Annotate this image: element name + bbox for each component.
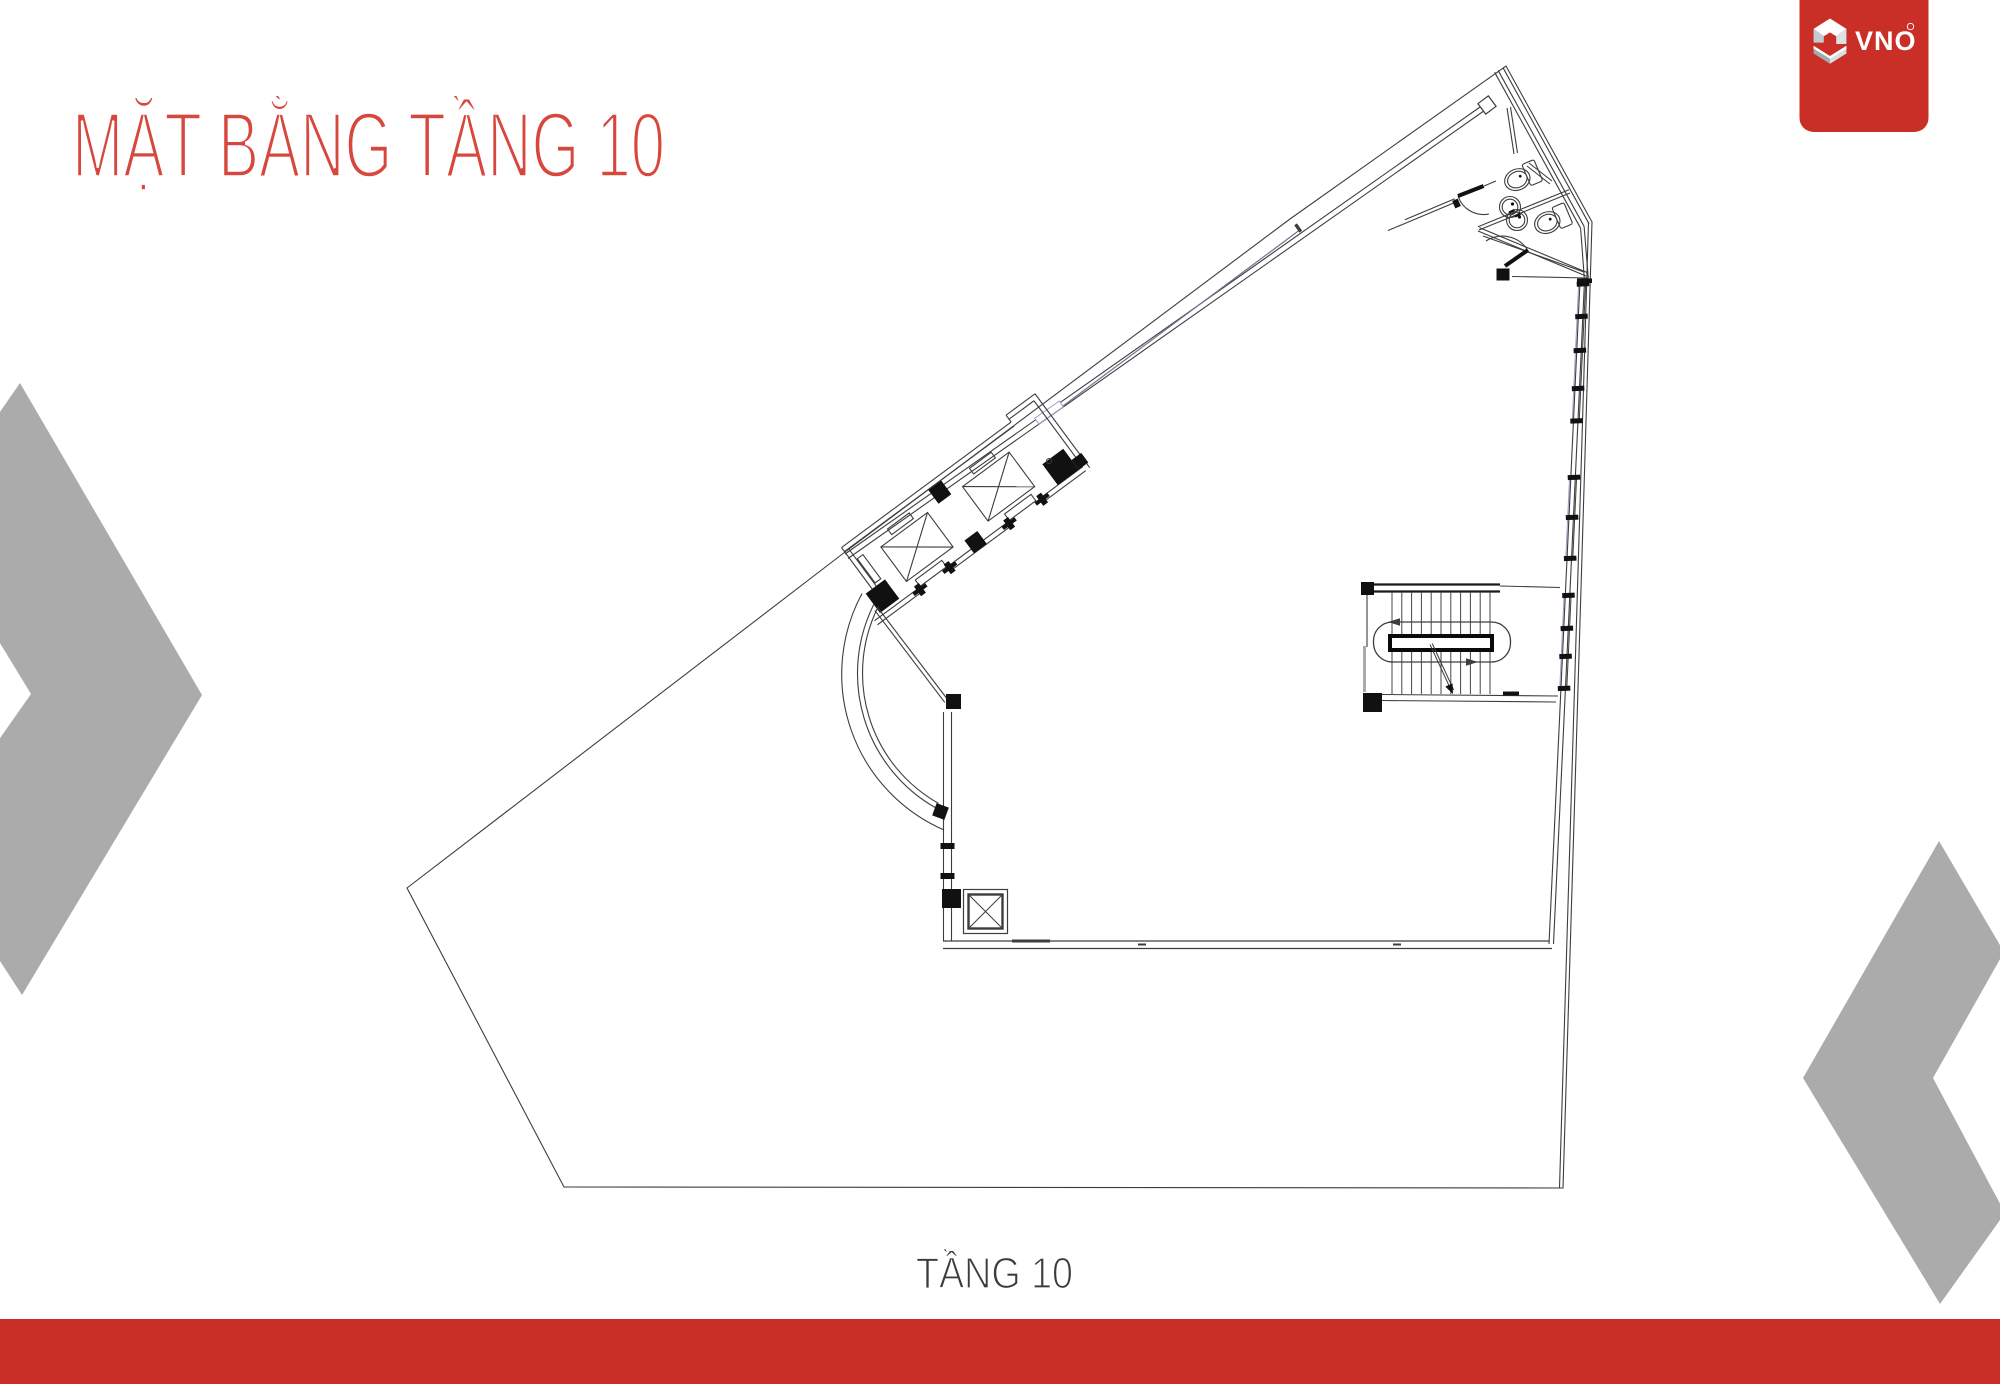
svg-text:VNO: VNO <box>1855 26 1917 56</box>
svg-text:TẦNG 10: TẦNG 10 <box>916 1248 1073 1298</box>
svg-text:MẶT BẰNG TẦNG 10: MẶT BẰNG TẦNG 10 <box>72 93 665 197</box>
